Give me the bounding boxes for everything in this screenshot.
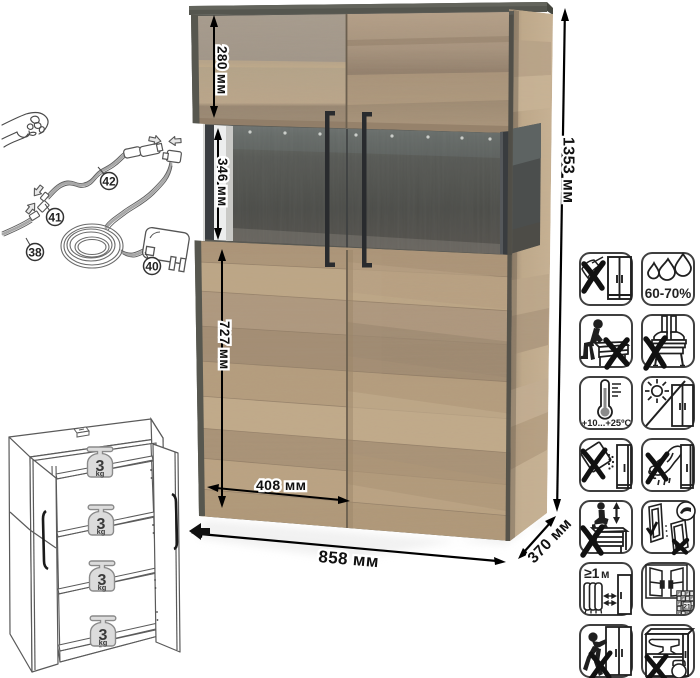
svg-text:346 мм: 346 мм: [215, 158, 230, 207]
svg-text:727 мм: 727 мм: [217, 321, 232, 370]
svg-text:60-70%: 60-70%: [645, 286, 692, 301]
svg-text:42: 42: [102, 175, 116, 189]
svg-text:kg: kg: [96, 469, 105, 478]
svg-text:40: 40: [145, 260, 159, 274]
svg-text:≥1: ≥1: [584, 565, 600, 581]
svg-text:kg: kg: [98, 583, 107, 592]
svg-text:+10...+25ºC: +10...+25ºC: [582, 418, 632, 428]
svg-text:280 мм: 280 мм: [215, 46, 230, 95]
svg-text:858 мм: 858 мм: [318, 547, 380, 571]
svg-text:408 мм: 408 мм: [256, 477, 306, 493]
svg-text:21: 21: [683, 604, 691, 611]
svg-text:1353 мм: 1353 мм: [560, 137, 577, 204]
svg-text:м: м: [601, 569, 610, 581]
svg-text:41: 41: [48, 211, 62, 225]
svg-text:kg: kg: [99, 638, 108, 647]
svg-text:38: 38: [28, 246, 42, 260]
svg-text:kg: kg: [97, 527, 106, 536]
